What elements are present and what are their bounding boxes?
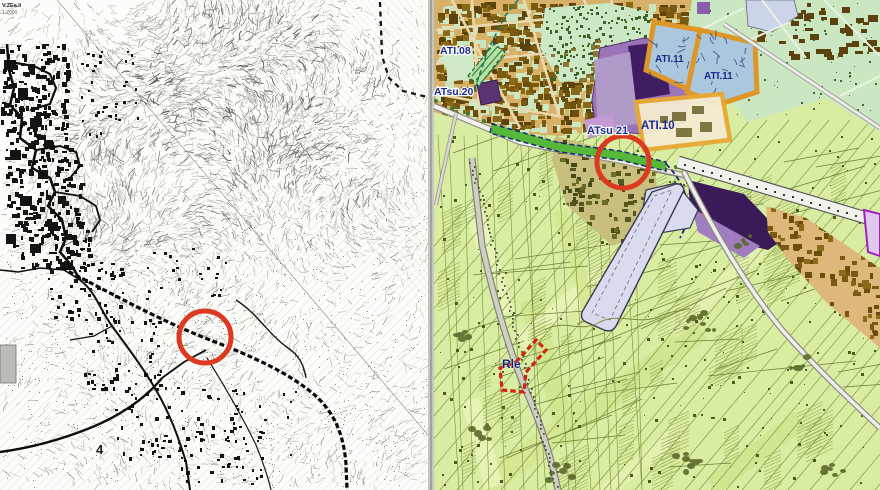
svg-text:4: 4 [96,442,104,457]
svg-text:1:2000: 1:2000 [2,10,18,16]
svg-text:ATI.11: ATI.11 [655,54,684,65]
svg-text:ATI.11: ATI.11 [704,71,733,82]
svg-text:ATsu.20: ATsu.20 [434,86,473,98]
svg-text:ATI.08: ATI.08 [440,45,471,57]
svg-text:Rle: Rle [502,357,521,371]
svg-text:V.ZEa.li: V.ZEa.li [2,3,22,9]
svg-text:ATI.10: ATI.10 [641,120,675,132]
svg-text:ATsu 21: ATsu 21 [587,125,628,137]
